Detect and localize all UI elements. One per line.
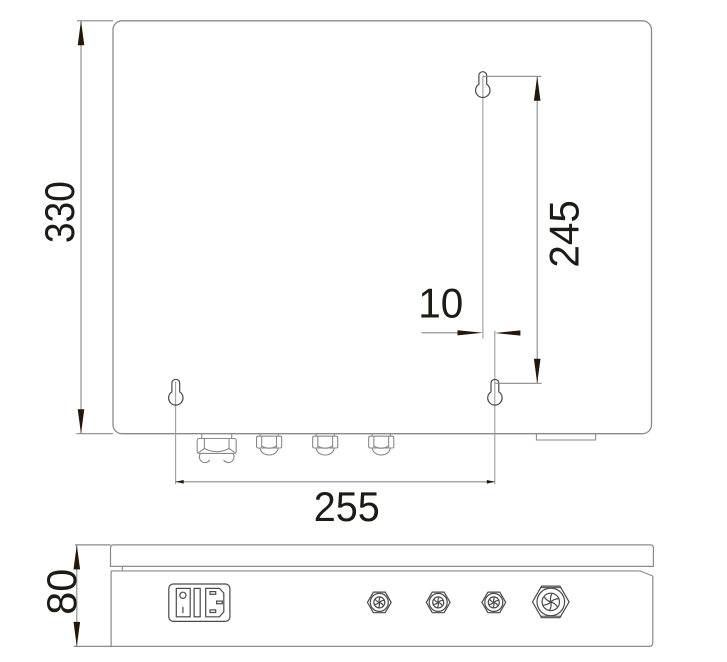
svg-text:10: 10 (418, 280, 463, 327)
svg-text:245: 245 (541, 200, 588, 268)
svg-text:255: 255 (314, 483, 380, 530)
svg-text:80: 80 (38, 569, 85, 615)
svg-text:330: 330 (36, 181, 83, 243)
